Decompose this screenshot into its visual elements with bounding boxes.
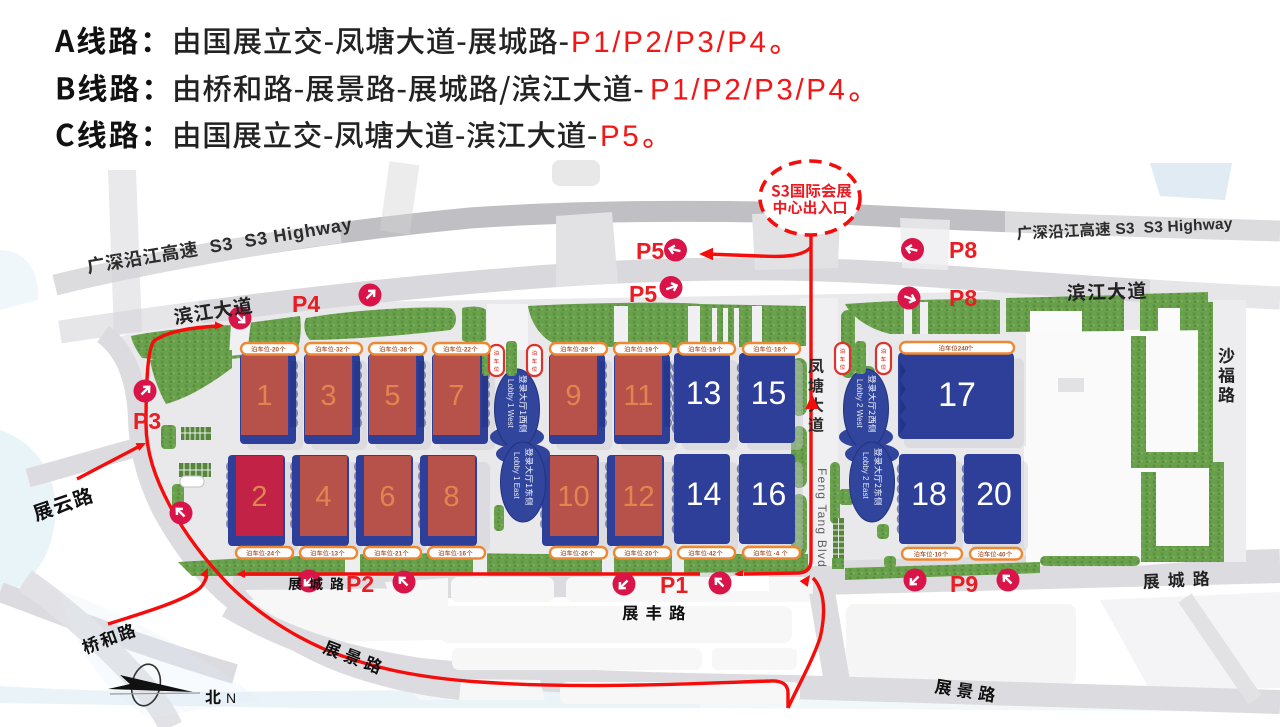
svg-text:·4: ·4 — [774, 551, 780, 558]
svg-text:·40: ·40 — [996, 552, 1006, 559]
svg-text:8: 8 — [443, 481, 459, 513]
svg-text:P1/P2/P3/P4: P1/P2/P3/P4 — [650, 74, 848, 107]
svg-text:P1: P1 — [660, 572, 688, 598]
svg-text:·20: ·20 — [643, 551, 653, 558]
svg-text:Feng Tang Blvd: Feng Tang Blvd — [815, 468, 829, 568]
svg-text:N: N — [226, 690, 236, 706]
svg-text:·26: ·26 — [579, 551, 589, 558]
svg-text:14: 14 — [686, 476, 722, 512]
svg-text:15: 15 — [751, 375, 787, 411]
svg-text:·10: ·10 — [932, 552, 942, 559]
svg-text:P4: P4 — [292, 291, 320, 317]
svg-text:·38: ·38 — [398, 347, 408, 354]
svg-text:Lobby 1 West: Lobby 1 West — [506, 379, 515, 429]
svg-text:·22: ·22 — [462, 347, 472, 354]
svg-text:20: 20 — [976, 476, 1012, 512]
svg-text:10: 10 — [557, 481, 589, 513]
svg-text:3: 3 — [320, 380, 336, 412]
svg-text:18: 18 — [911, 476, 947, 512]
svg-text:6: 6 — [379, 481, 395, 513]
svg-text:P5: P5 — [636, 238, 664, 264]
svg-text:P9: P9 — [950, 571, 978, 597]
svg-text:11: 11 — [623, 380, 653, 412]
svg-text:5: 5 — [384, 380, 400, 412]
svg-text:Lobby 2 West: Lobby 2 West — [855, 379, 864, 429]
svg-text:Lobby 2 East: Lobby 2 East — [861, 452, 870, 499]
svg-text:·240: ·240 — [956, 346, 969, 353]
svg-text:1: 1 — [256, 380, 272, 412]
svg-text:P5: P5 — [629, 281, 657, 307]
svg-text:·16: ·16 — [457, 551, 467, 558]
svg-text:·19: ·19 — [707, 347, 717, 354]
svg-text:12: 12 — [622, 481, 654, 513]
svg-text:·18: ·18 — [772, 347, 782, 354]
svg-text:Lobby 1 East: Lobby 1 East — [512, 452, 521, 499]
svg-text:9: 9 — [565, 380, 581, 412]
svg-text:·20: ·20 — [270, 347, 280, 354]
svg-text:P2: P2 — [346, 571, 374, 597]
svg-text:·13: ·13 — [329, 551, 339, 558]
svg-text:·42: ·42 — [707, 551, 717, 558]
svg-text:·19: ·19 — [643, 347, 653, 354]
svg-text:P8: P8 — [949, 237, 977, 263]
svg-text:P1/P2/P3/P4: P1/P2/P3/P4 — [571, 26, 769, 59]
svg-text:P3: P3 — [133, 408, 161, 434]
svg-text:·32: ·32 — [334, 347, 344, 354]
svg-text:4: 4 — [315, 481, 331, 513]
svg-text:13: 13 — [686, 375, 722, 411]
svg-text:16: 16 — [751, 476, 787, 512]
svg-text:P5: P5 — [600, 120, 641, 153]
svg-text:·24: ·24 — [265, 551, 275, 558]
svg-text:·21: ·21 — [393, 551, 403, 558]
svg-text:·28: ·28 — [579, 347, 589, 354]
svg-text:P8: P8 — [949, 285, 977, 311]
svg-text:7: 7 — [448, 380, 464, 412]
svg-text:17: 17 — [938, 376, 976, 414]
svg-text:2: 2 — [251, 481, 267, 513]
